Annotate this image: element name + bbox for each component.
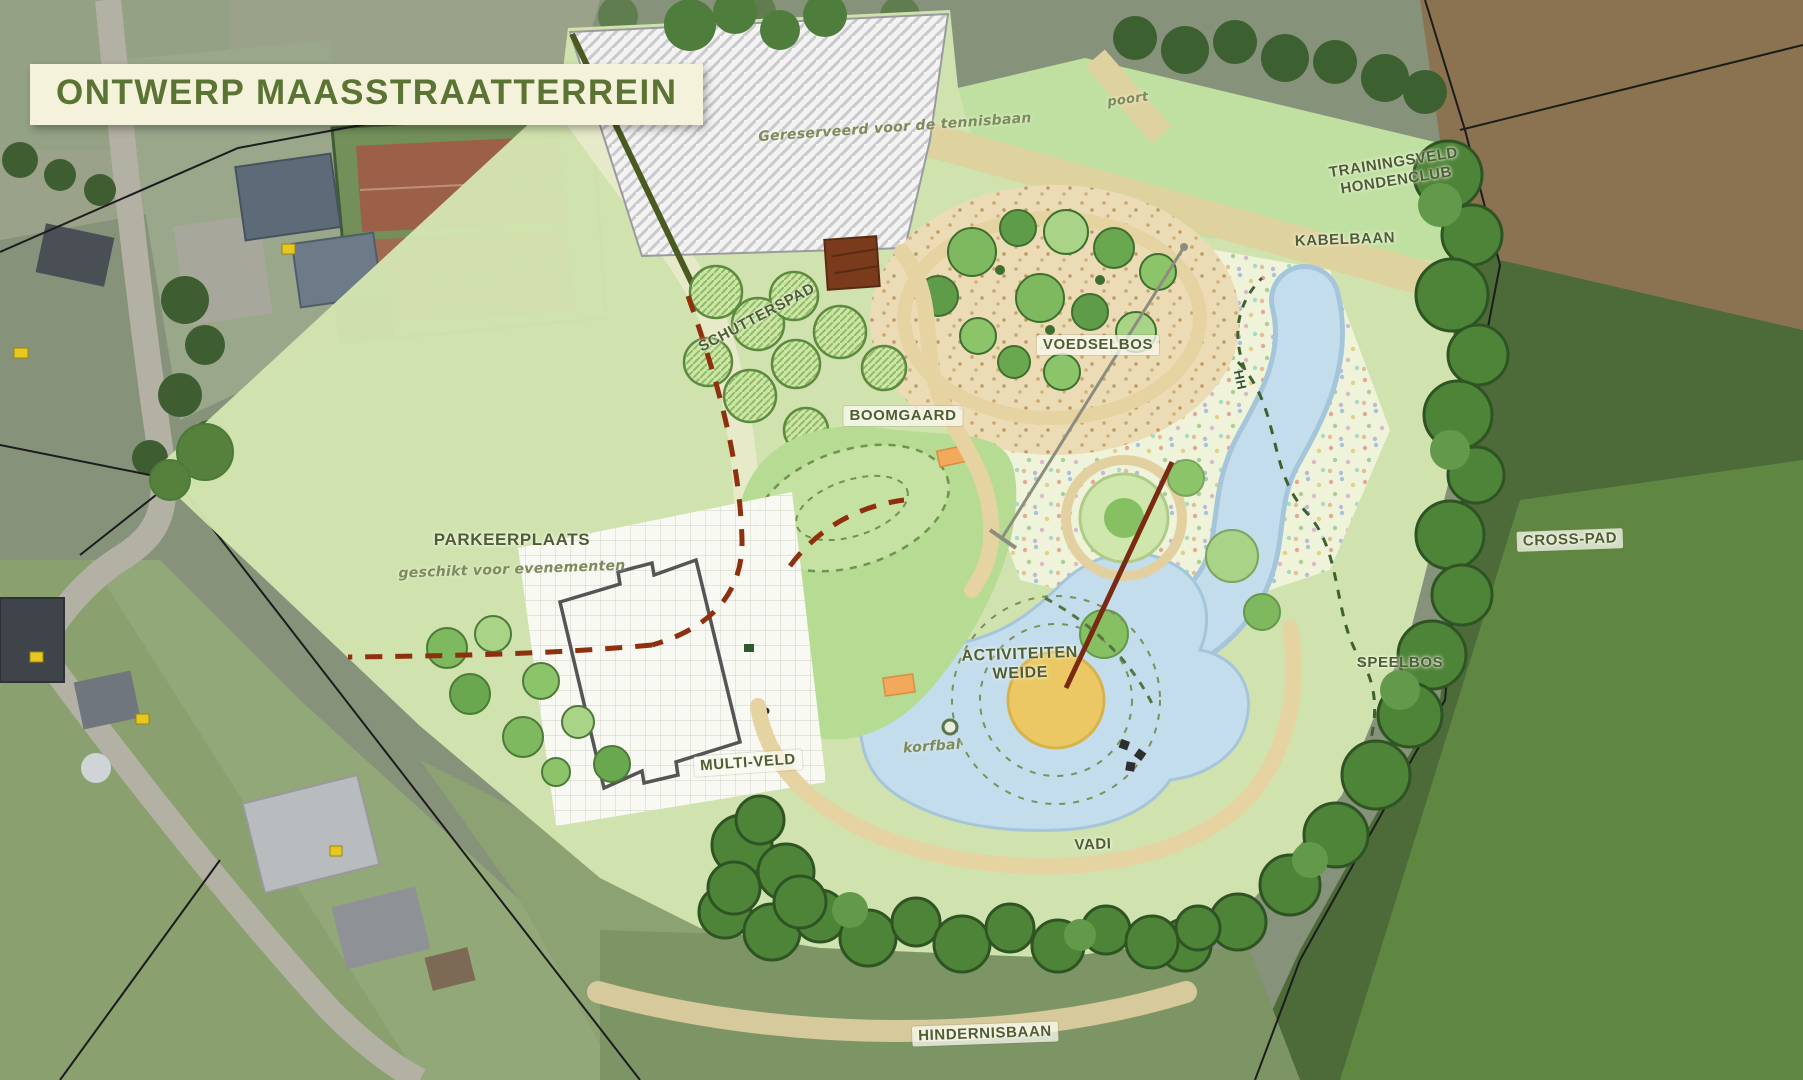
page-title: ONTWERP MAASSTRAATTERREIN [56, 73, 677, 113]
label-boomgaard: BOOMGAARD [843, 406, 962, 426]
korfbal-post [943, 720, 957, 734]
label-vadi: VADI [1074, 835, 1112, 854]
label-activiteiten-weide: ACTIVITEITEN WEIDE [961, 643, 1079, 685]
title-banner: ONTWERP MAASSTRAATTERREIN [30, 64, 703, 125]
label-speelbos: SPEELBOS [1357, 654, 1444, 672]
label-kabelbaan: KABELBAAN [1295, 229, 1396, 250]
garden-plot [824, 236, 879, 290]
park-design-map: ONTWERP MAASSTRAATTERREIN Gereserveerd v… [0, 0, 1803, 1080]
label-voedselbos: VOEDSELBOS [1037, 335, 1159, 355]
label-crosspad: CROSS-PAD [1517, 528, 1624, 552]
label-parkeerplaats: PARKEERPLAATS [434, 530, 590, 550]
